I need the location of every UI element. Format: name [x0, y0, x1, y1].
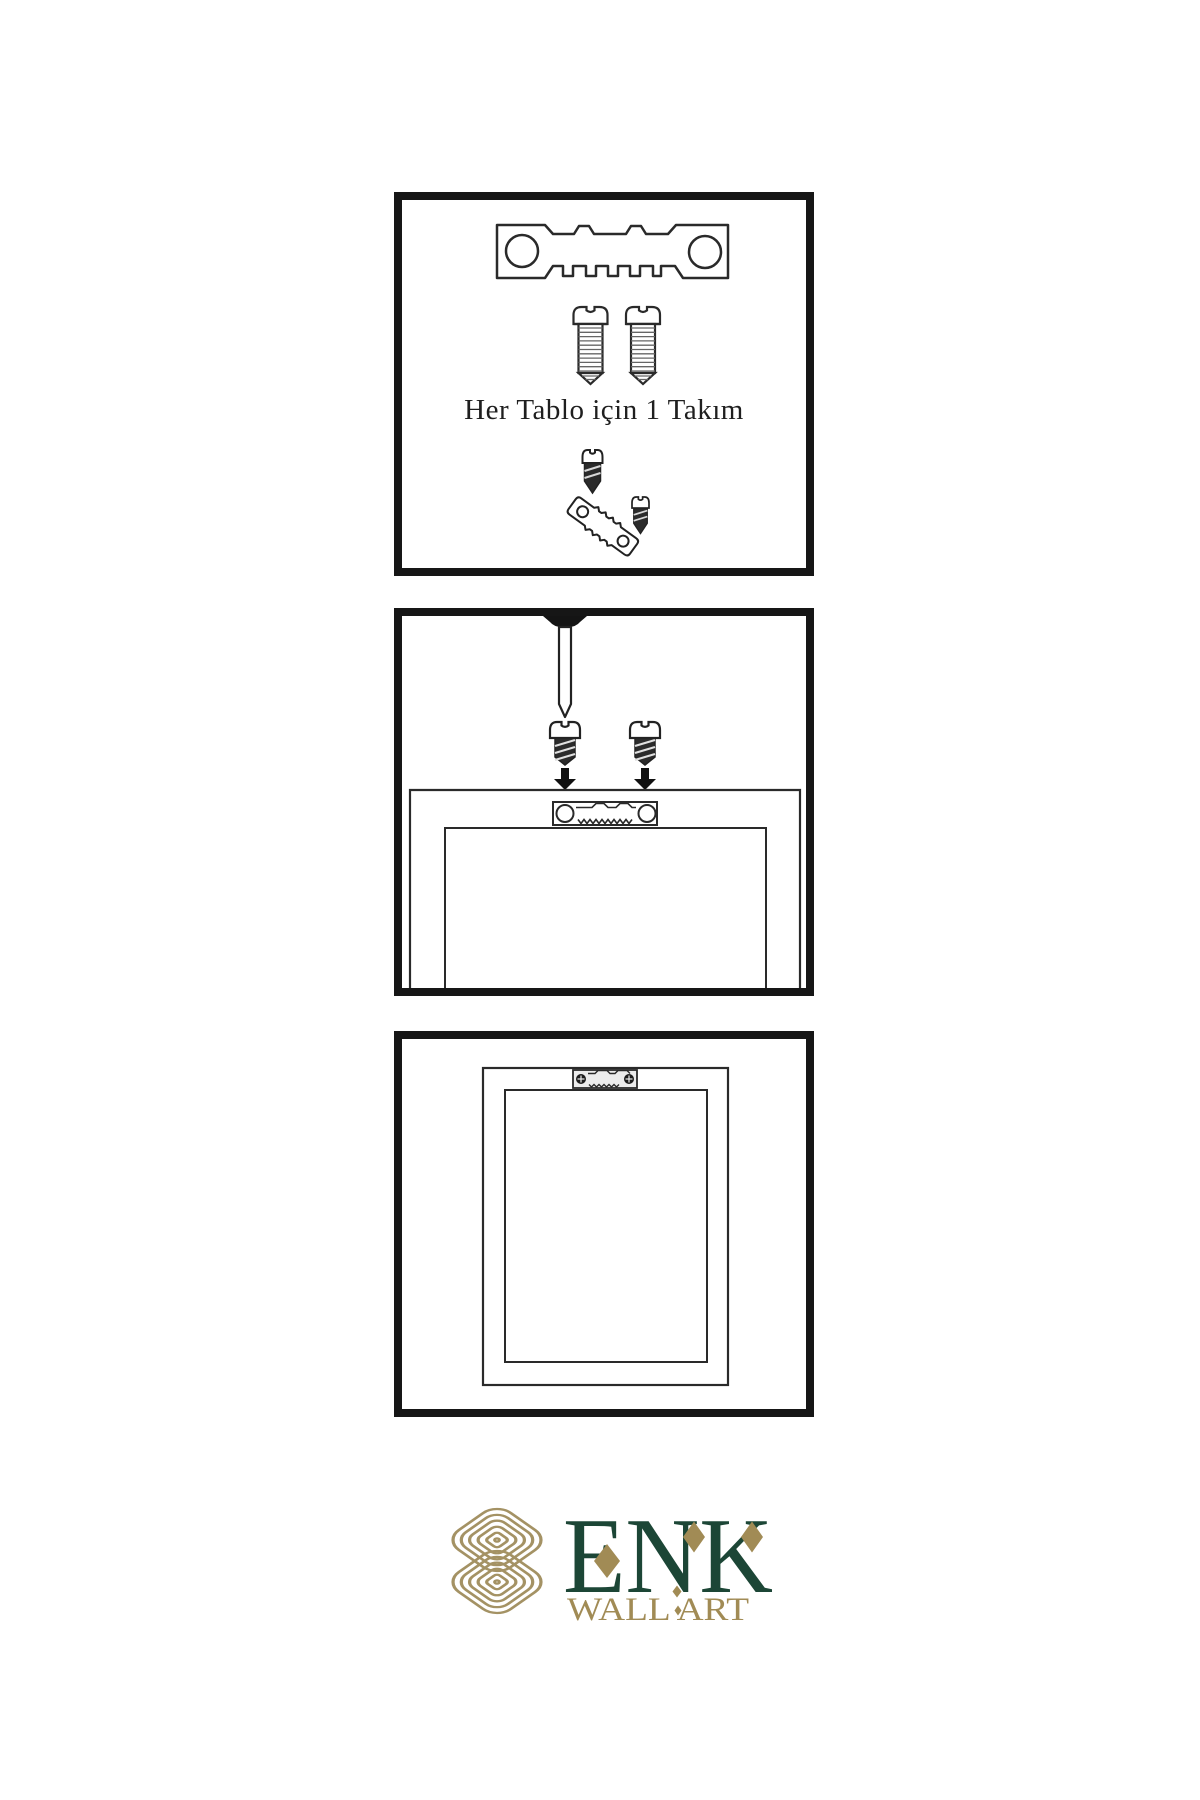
- brand-logo: ENK WALL ART: [430, 1480, 790, 1640]
- screw-icon: [550, 722, 580, 765]
- instruction-panel-hung-frame: [394, 1031, 814, 1417]
- hanger-screw-head-icon: [576, 1074, 586, 1084]
- wall-mounting-diagram: [402, 616, 806, 988]
- hung-frame-diagram: [402, 1039, 806, 1409]
- knot-emblem-icon: [445, 1503, 549, 1619]
- brand-tagline: WALL ART: [567, 1592, 749, 1628]
- screw-icon: [574, 307, 608, 384]
- kit-caption: Her Tablo için 1 Takım: [464, 394, 744, 426]
- down-arrow-icon: [554, 768, 576, 790]
- picture-frame-icon: [483, 1068, 728, 1385]
- down-arrow-icon: [634, 768, 656, 790]
- instruction-panel-hardware-kit: Her Tablo için 1 Takım: [394, 192, 814, 576]
- screw-icon: [626, 307, 660, 384]
- hardware-kit-diagram: Her Tablo için 1 Takım: [402, 200, 806, 568]
- wall-nail-icon: [543, 616, 587, 717]
- screw-icon: [630, 722, 660, 765]
- screw-into-hanger-icon: [564, 450, 649, 559]
- mounted-hanger-small-icon: [573, 1070, 637, 1088]
- mounted-hanger-icon: [553, 802, 657, 825]
- sawtooth-hanger-icon: [497, 225, 728, 278]
- page-root: Her Tablo için 1 Takım: [0, 0, 1200, 1800]
- instruction-panel-wall-mounting: [394, 608, 814, 996]
- hanger-screw-head-icon: [624, 1074, 634, 1084]
